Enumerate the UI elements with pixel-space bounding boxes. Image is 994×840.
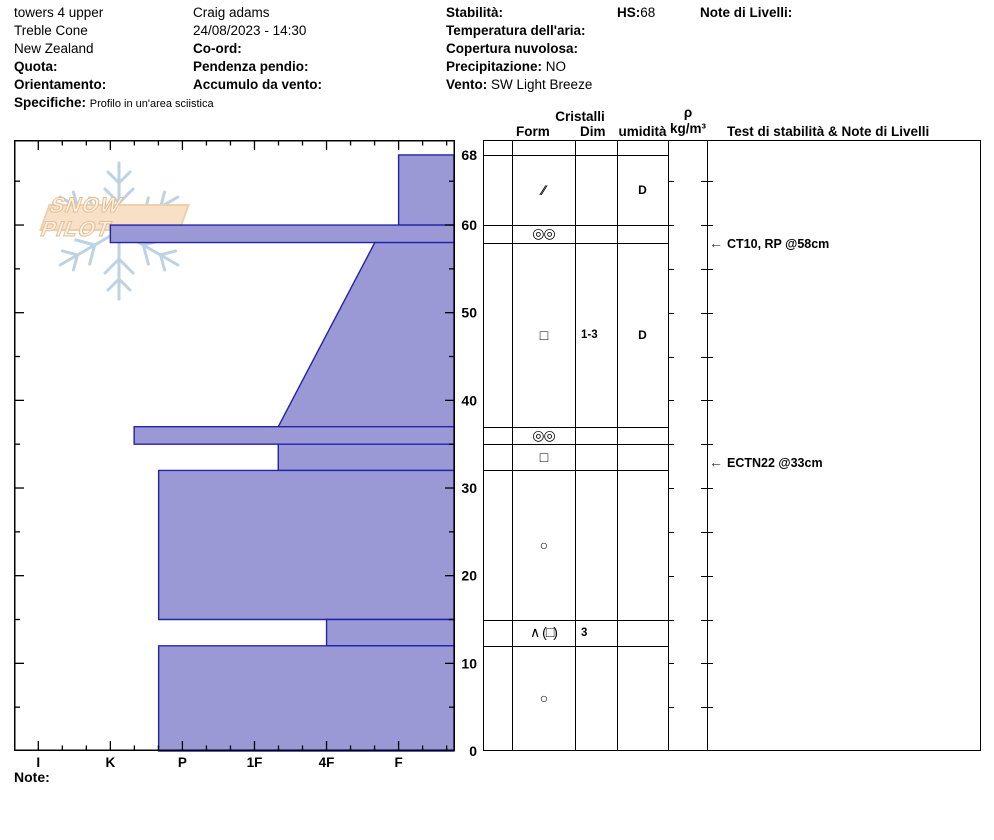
density-tick bbox=[668, 225, 674, 226]
table-vline bbox=[668, 140, 669, 751]
density-tick bbox=[707, 357, 713, 358]
specifiche-line: Specifiche: Profilo in un'area sciistica bbox=[14, 95, 214, 112]
density-tick bbox=[668, 532, 674, 533]
density-tick bbox=[707, 576, 713, 577]
table-top-border bbox=[483, 140, 981, 141]
stability-test-label: ECTN22 @33cm bbox=[727, 456, 823, 470]
hardness-label: 1F bbox=[247, 755, 263, 770]
density-tick bbox=[668, 663, 674, 664]
density-unit-header: kg/m³ bbox=[668, 121, 708, 136]
depth-label: 20 bbox=[461, 568, 477, 584]
density-tick bbox=[668, 488, 674, 489]
quota-label: Quota: bbox=[14, 59, 58, 74]
layer-boundary-line bbox=[483, 470, 668, 471]
depth-label: 40 bbox=[461, 392, 477, 408]
pit-location: Treble Cone bbox=[14, 23, 88, 38]
coord-label: Co-ord: bbox=[193, 41, 242, 56]
pit-datetime: 24/08/2023 - 14:30 bbox=[193, 23, 306, 38]
accumulo-label: Accumulo da vento: bbox=[193, 77, 322, 92]
hs-label: HS: bbox=[617, 5, 640, 20]
form-header: Form bbox=[516, 124, 550, 139]
depth-label: 60 bbox=[461, 217, 477, 233]
profile-layer-bar bbox=[159, 470, 454, 619]
depth-label: 68 bbox=[461, 147, 477, 163]
density-tick bbox=[668, 576, 674, 577]
umidita-header: umidità bbox=[617, 124, 668, 139]
temperatura-label: Temperatura dell'aria: bbox=[446, 23, 586, 38]
grain-dim: 1-3 bbox=[575, 243, 617, 427]
table-vline bbox=[483, 140, 484, 751]
density-tick bbox=[668, 269, 674, 270]
grain-form-facets: □ bbox=[512, 243, 575, 427]
precipitazione-label: Precipitazione: bbox=[446, 59, 542, 74]
layer-boundary-line bbox=[483, 225, 668, 226]
density-tick bbox=[707, 488, 713, 489]
observer-name: Craig adams bbox=[193, 5, 270, 20]
density-tick bbox=[707, 181, 713, 182]
hardness-label: P bbox=[178, 755, 187, 770]
profile-layer-bar bbox=[159, 646, 454, 751]
density-tick bbox=[707, 269, 713, 270]
left-arrow-icon: ← bbox=[709, 235, 723, 251]
dim-header: Dim bbox=[580, 124, 606, 139]
snowpilot-report: towers 4 upper Treble Cone New Zealand Q… bbox=[0, 0, 994, 840]
grain-form-depth-hoar-facets: ∧ (□) bbox=[512, 620, 575, 646]
copertura-label: Copertura nuvolosa: bbox=[446, 41, 578, 56]
density-tick bbox=[668, 357, 674, 358]
profile-layer-bar bbox=[110, 225, 454, 243]
table-vline bbox=[617, 140, 618, 751]
layer-boundary-line bbox=[483, 444, 668, 445]
cristalli-header: Cristalli bbox=[540, 109, 620, 124]
profile-layer-bar bbox=[327, 620, 454, 646]
stability-test-label: CT10, RP @58cm bbox=[727, 237, 829, 251]
hs-line: HS:68 bbox=[617, 5, 655, 20]
layer-boundary-line bbox=[483, 427, 668, 428]
grain-umidita: D bbox=[617, 155, 668, 225]
left-arrow-icon: ← bbox=[709, 454, 723, 470]
pit-country: New Zealand bbox=[14, 41, 94, 56]
density-tick bbox=[707, 225, 713, 226]
density-tick bbox=[707, 444, 713, 445]
vento-line: Vento: SW Light Breeze bbox=[446, 77, 592, 92]
precipitazione-line: Precipitazione: NO bbox=[446, 59, 566, 74]
profile-layer-bar bbox=[278, 444, 454, 470]
depth-label: 50 bbox=[461, 305, 477, 321]
profile-layer-bar bbox=[134, 427, 454, 445]
grain-form-melt-freeze-crust: ◎◎ bbox=[512, 225, 575, 243]
profile-layer-bar bbox=[278, 243, 454, 427]
table-vline bbox=[980, 140, 981, 751]
density-tick bbox=[707, 400, 713, 401]
stability-test-note: ←CT10, RP @58cm bbox=[709, 235, 829, 252]
hs-value: 68 bbox=[640, 5, 655, 20]
pendenza-label: Pendenza pendio: bbox=[193, 59, 309, 74]
density-tick bbox=[707, 707, 713, 708]
grain-form-facets: □ bbox=[512, 444, 575, 470]
density-tick bbox=[707, 313, 713, 314]
density-tick bbox=[707, 620, 713, 621]
grain-form-melt-freeze-crust: ◎◎ bbox=[512, 427, 575, 445]
density-tick bbox=[668, 620, 674, 621]
density-tick bbox=[668, 181, 674, 182]
precipitazione-value: NO bbox=[546, 59, 566, 74]
grain-dim: 3 bbox=[575, 620, 617, 646]
hardness-label: 4F bbox=[319, 755, 335, 770]
note-livelli-label: Note di Livelli: bbox=[700, 5, 792, 20]
layer-boundary-line bbox=[483, 646, 668, 647]
grain-form-decomposing-fragments: ∕∕ bbox=[512, 155, 575, 225]
depth-label: 10 bbox=[461, 655, 477, 671]
hardness-label: I bbox=[36, 755, 40, 770]
table-vline bbox=[575, 140, 576, 751]
density-tick bbox=[668, 400, 674, 401]
grain-form-rounds: ○ bbox=[512, 470, 575, 619]
density-tick bbox=[668, 707, 674, 708]
hardness-label: F bbox=[394, 755, 402, 770]
grain-umidita: D bbox=[617, 243, 668, 427]
profile-plot: 010203040506068IKP1F4FF bbox=[14, 140, 484, 780]
hardness-profile-chart: SNOW PILOT 010203040506068IKP1F4FF bbox=[14, 140, 484, 780]
depth-label: 0 bbox=[469, 743, 477, 759]
depth-label: 30 bbox=[461, 480, 477, 496]
stabilita-label: Stabilità: bbox=[446, 5, 503, 20]
vento-label: Vento: bbox=[446, 77, 487, 92]
density-tick bbox=[707, 532, 713, 533]
grain-table: ∕∕D◎◎□1-3D◎◎□○∧ (□)3○←CT10, RP @58cm←ECT… bbox=[483, 140, 981, 752]
stability-tests-header: Test di stabilità & Note di Livelli bbox=[727, 124, 929, 139]
vento-value: SW Light Breeze bbox=[491, 77, 592, 92]
table-vline bbox=[707, 140, 708, 751]
note-label: Note: bbox=[14, 770, 50, 785]
orientamento-label: Orientamento: bbox=[14, 77, 106, 92]
specifiche-label: Specifiche: bbox=[14, 95, 86, 110]
density-tick bbox=[668, 444, 674, 445]
stability-test-note: ←ECTN22 @33cm bbox=[709, 454, 823, 471]
density-tick bbox=[707, 663, 713, 664]
hardness-label: K bbox=[105, 755, 115, 770]
profile-layer-bar bbox=[399, 155, 454, 225]
specifiche-value: Profilo in un'area sciistica bbox=[90, 98, 214, 110]
pit-name: towers 4 upper bbox=[14, 5, 103, 20]
density-tick bbox=[668, 313, 674, 314]
density-symbol-header: ρ bbox=[668, 105, 708, 120]
grain-form-rounds: ○ bbox=[512, 646, 575, 751]
